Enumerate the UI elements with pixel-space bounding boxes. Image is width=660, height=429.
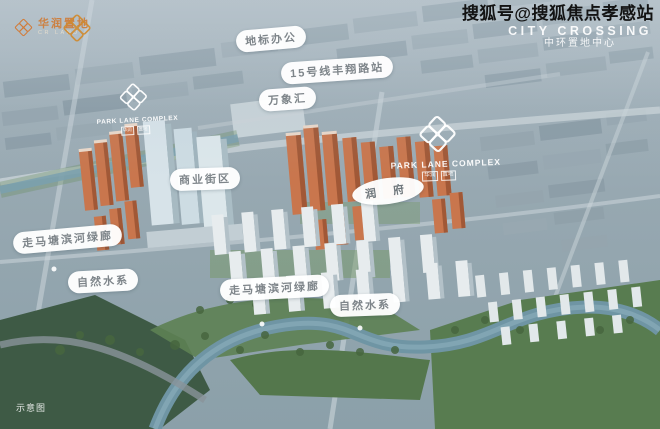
- parklane-seal: 华润: [120, 126, 133, 135]
- label-natural-water-south: 自然水系: [330, 293, 401, 317]
- label-natural-water-west: 自然水系: [67, 268, 138, 294]
- parklane-knot-icon: [118, 81, 150, 113]
- parklane-seal: 置地: [136, 125, 149, 134]
- parklane-title: PARK LANE COMPLEX: [390, 157, 486, 170]
- sohu-watermark: 搜狐号@搜狐焦点孝感站: [462, 4, 654, 23]
- crland-logo-icon: [14, 18, 33, 37]
- project-watermark: CITY CROSSING 中环置地中心: [508, 24, 652, 50]
- label-mixc-mall: 万象汇: [258, 86, 316, 112]
- parklane-logo-right: PARK LANE COMPLEX 华润 置地: [389, 112, 487, 182]
- parklane-emblem-orange-icon: [62, 13, 92, 43]
- project-name-cn: 中环置地中心: [508, 38, 652, 50]
- label-commercial-street: 商业街区: [170, 167, 241, 191]
- parklane-knot-icon: [417, 113, 458, 154]
- parklane-seal: 置地: [440, 170, 455, 180]
- real-estate-aerial-promo: 华润置地 CR LAND 搜狐号@搜狐焦点孝感站 CITY CROSSING 中…: [0, 0, 660, 429]
- schematic-disclaimer: 示意图: [16, 401, 46, 414]
- parklane-logo-left: PARK LANE COMPLEX 华润 置地: [95, 80, 174, 136]
- project-name-en: CITY CROSSING: [508, 24, 652, 38]
- watermark-block: 搜狐号@搜狐焦点孝感站 CITY CROSSING 中环置地中心: [462, 4, 654, 50]
- parklane-seal: 华润: [422, 171, 437, 181]
